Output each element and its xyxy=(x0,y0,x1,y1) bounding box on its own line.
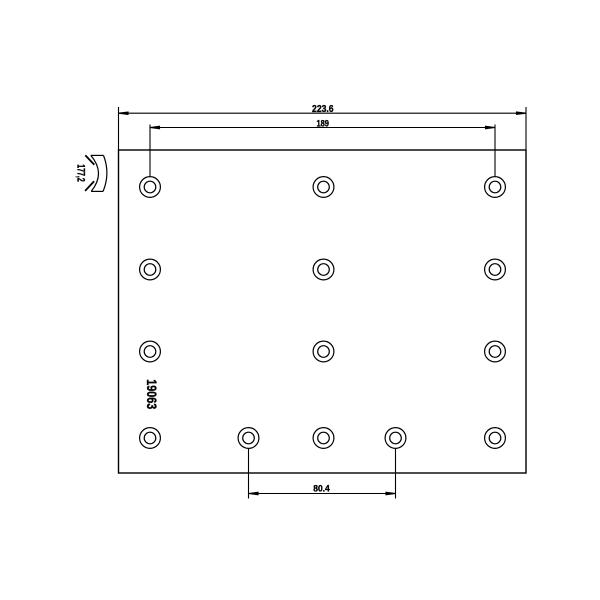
svg-text:177,2: 177,2 xyxy=(75,164,87,182)
svg-text:80.4: 80.4 xyxy=(313,484,330,494)
svg-text:19063: 19063 xyxy=(144,379,160,409)
svg-text:223.6: 223.6 xyxy=(312,104,334,115)
svg-text:189: 189 xyxy=(316,118,329,129)
